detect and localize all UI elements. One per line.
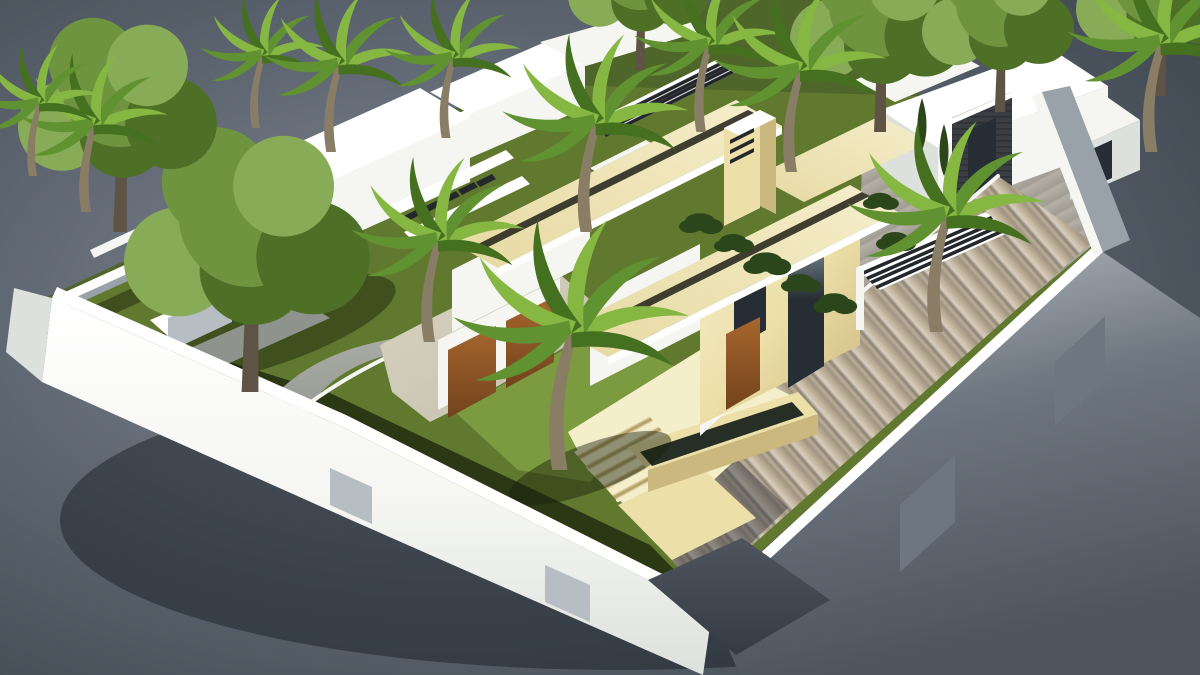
pergola-post [856,268,864,330]
chimney [724,110,776,226]
villa-render [0,0,1200,675]
render-canvas [0,0,1200,675]
